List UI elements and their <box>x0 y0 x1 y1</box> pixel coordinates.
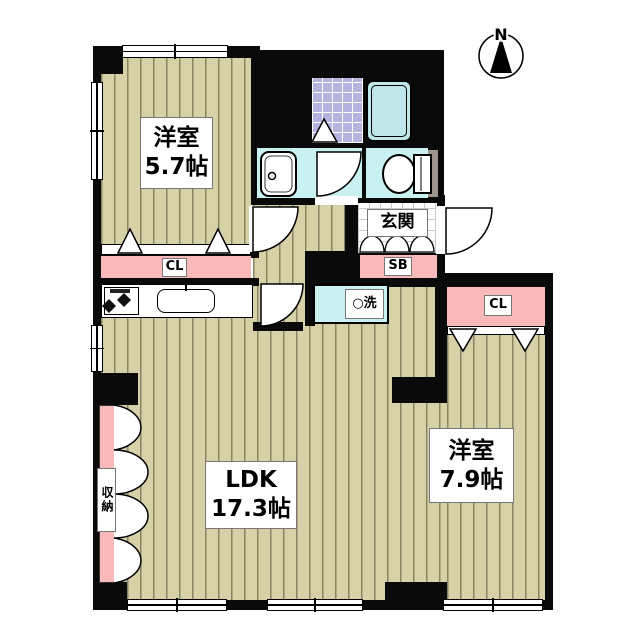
closet-right-label: CL <box>484 295 512 316</box>
kitchen-sink-icon <box>157 289 215 313</box>
window-ldk-left <box>91 325 103 372</box>
bedroom1-door-opening <box>249 206 259 252</box>
toilet-room-floor <box>366 148 428 198</box>
wall-divider-pillar <box>392 377 447 403</box>
bedroom1-name: 洋室 <box>154 124 200 153</box>
wall-bedroom2-top <box>437 273 553 287</box>
wall-door-stub <box>253 322 303 331</box>
wall-left-jog <box>93 373 138 405</box>
bath-tile-icon <box>312 78 363 143</box>
entrance-label: 玄関 <box>367 209 428 237</box>
wall-right <box>545 273 553 610</box>
entrance-door-opening <box>436 206 445 254</box>
window-ldk-bottom-1 <box>127 599 227 611</box>
bedroom1-size: 5.7帖 <box>145 153 209 182</box>
faucet-icon <box>185 283 187 291</box>
bedroom1-label: 洋室 5.7帖 <box>140 117 213 189</box>
closet-right-threshold <box>447 326 545 335</box>
floor-plan: N 洋室 5.7帖 LDK 17.3帖 洋室 7.9帖 玄関 CL SB CL … <box>0 0 640 640</box>
north-compass-icon: N <box>479 25 523 78</box>
stove-icon <box>104 287 139 315</box>
shoe-box-label: SB <box>384 257 412 276</box>
ldk-size: 17.3帖 <box>211 495 291 524</box>
ldk-floor <box>101 284 447 600</box>
toilet-door-panel <box>428 150 438 197</box>
bedroom2-name: 洋室 <box>449 437 495 466</box>
window-bedroom1-top <box>122 45 228 58</box>
window-bedroom2-bottom <box>443 599 543 611</box>
svg-text:N: N <box>494 25 507 44</box>
laundry-label: ○洗 <box>345 289 384 319</box>
window-ldk-bottom-2 <box>267 599 363 611</box>
ldk-name: LDK <box>225 466 277 495</box>
bathtub-icon <box>366 80 412 142</box>
closet-top-label: CL <box>162 258 187 277</box>
washroom-door-opening <box>315 196 358 205</box>
closet-top-threshold <box>101 244 251 255</box>
washroom-floor <box>257 148 362 198</box>
bedroom2-size: 7.9帖 <box>440 466 504 495</box>
window-bedroom1-left <box>91 82 103 180</box>
ldk-label: LDK 17.3帖 <box>205 461 297 529</box>
bedroom2-label: 洋室 7.9帖 <box>429 428 514 503</box>
storage-label: 収納 <box>97 468 116 532</box>
entrance-door-swing-icon <box>446 208 492 254</box>
wall-corner-bottommid <box>385 582 447 610</box>
